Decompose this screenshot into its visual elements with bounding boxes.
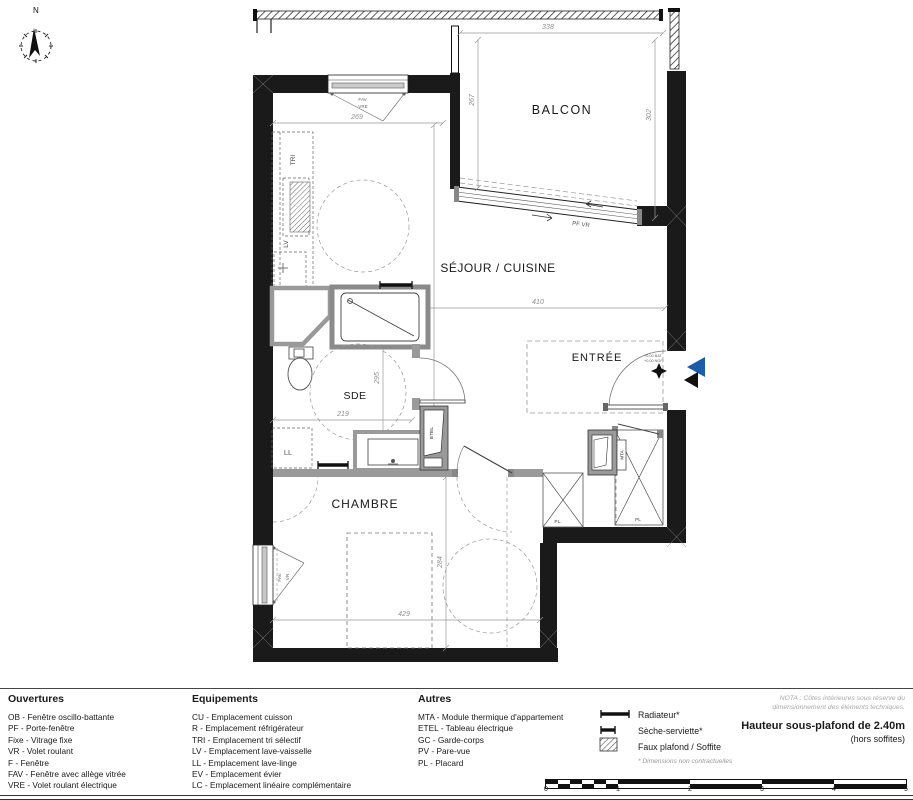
- legend-item: VR - Volet roulant: [8, 746, 126, 757]
- legend-column-ouvertures: Ouvertures OB - Fenêtre oscillo-battante…: [8, 693, 126, 792]
- exterior-walls: [253, 71, 686, 662]
- sde-door-arc: [420, 358, 465, 403]
- dim-balcon-left: 267: [469, 93, 476, 107]
- legend-symbols: Radiateur* Sèche-serviette* Faux plafond…: [598, 707, 732, 765]
- chambre-turning-circle: [443, 539, 537, 633]
- legend-item: ETEL - Tableau électrique: [418, 723, 563, 734]
- toilet: [288, 347, 313, 390]
- floorplan-page: N: [0, 0, 913, 800]
- nota-line-2: dimensionnement des éléments techniques.: [735, 704, 905, 713]
- legend-item: FAV - Fenêtre avec allège vitrée: [8, 769, 126, 780]
- legend-footnote: * Dimensions non contractuelles: [638, 758, 732, 765]
- compass: N: [19, 6, 53, 63]
- window-vre-label: VRE: [358, 104, 367, 109]
- bottom-double-rule: [0, 795, 913, 800]
- chambre-door: [452, 446, 514, 477]
- floor-plan: N: [0, 0, 913, 690]
- scale-tick: 5: [904, 786, 908, 793]
- scale-tick: 2: [688, 786, 692, 793]
- scale-bar: 0 1 2 3 4 5: [545, 776, 907, 794]
- legend-item: OB - Fenêtre oscillo-battante: [8, 712, 126, 723]
- nota-line-1: NOTA : Côtes intérieures sous réserve du: [735, 695, 905, 704]
- chambre-room-label: CHAMBRE: [331, 497, 398, 511]
- legend-item: Fixe - Vitrage fixe: [8, 735, 126, 746]
- ceiling-height-sub: (hors soffites): [735, 734, 905, 744]
- pf-vr-label: PF VR: [572, 221, 591, 229]
- legend-title: Equipements: [192, 693, 351, 705]
- legend-item: R - Emplacement réfrigérateur: [192, 723, 351, 734]
- legend-item: F - Fenêtre: [8, 758, 126, 769]
- partition-walls: [273, 469, 543, 477]
- dim-balcon-right: 302: [646, 109, 653, 121]
- entrance-arrow-black: [684, 372, 698, 388]
- chambre-circulation-arc-left: [273, 477, 318, 522]
- etel-label: ETEL: [429, 427, 435, 439]
- scale-tick: 4: [832, 786, 836, 793]
- level-text-2: +0,00 NGF: [644, 359, 663, 363]
- pl-small-label: PL.: [554, 519, 561, 525]
- window-fav-label: FAV.: [358, 97, 367, 102]
- soffit-icon: [598, 737, 638, 757]
- legend-title: Autres: [418, 693, 563, 705]
- legend-column-autres: Autres MTA - Module thermique d'appartem…: [418, 693, 563, 769]
- pare-vue-screen: [452, 26, 459, 73]
- legend: Ouvertures OB - Fenêtre oscillo-battante…: [0, 688, 913, 797]
- dim-cuisine-width: 269: [350, 114, 363, 121]
- sliding-door-pf-vr: PF VR: [454, 178, 642, 229]
- table-circle: [317, 180, 409, 272]
- dim-balcon-width: 338: [542, 24, 554, 31]
- lv-label: LV: [283, 240, 290, 248]
- legend-column-equipements: Equipements CU - Emplacement cuisson R -…: [192, 693, 351, 792]
- dim-chambre-width: 429: [398, 611, 410, 618]
- chambre-window-fav-label: FAV.: [277, 572, 282, 581]
- sde-room-label: SDE: [343, 390, 366, 402]
- radiator-symbol: [318, 461, 348, 469]
- legend-item: LV - Emplacement lave-vaisselle: [192, 746, 351, 757]
- window-fav-vre: FAV. VRE: [328, 75, 408, 121]
- sde-angled-wall: [272, 288, 330, 344]
- legend-symbol-radiator: Radiateur*: [598, 707, 732, 722]
- legend-item: VRE - Volet roulant électrique: [8, 780, 126, 791]
- legend-item: CU - Emplacement cuisson: [192, 712, 351, 723]
- legend-item: PL - Placard: [418, 758, 563, 769]
- level-marker-star: [651, 363, 667, 379]
- legend-item: TRI - Emplacement tri sélectif: [192, 735, 351, 746]
- legend-item: EV - Emplacement évier: [192, 769, 351, 780]
- compass-north-label: N: [33, 6, 39, 15]
- mta-label: MTA: [620, 450, 625, 459]
- legend-item: PV - Pare-vue: [418, 746, 563, 757]
- ceiling-height-note: Hauteur sous-plafond de 2.40m: [735, 720, 905, 732]
- scale-bar-graphic: [545, 779, 907, 789]
- legend-item: MTA - Module thermique d'appartement: [418, 712, 563, 723]
- legend-symbol-label: Sèche-serviette*: [638, 726, 703, 736]
- balcony-railing: [253, 8, 680, 69]
- tri-label: TRI: [290, 155, 297, 166]
- dim-sejour-width: 410: [532, 299, 544, 306]
- pl-large-label: PL: [635, 517, 641, 523]
- compass-needle: [29, 28, 40, 58]
- dim-sde-depth: 295: [374, 372, 381, 385]
- legend-symbol-label: Radiateur*: [638, 710, 680, 720]
- legend-item: PF - Porte-fenêtre: [8, 723, 126, 734]
- entree-zone: ENTRÉE +0,00 BAT +0,00 NGF: [527, 341, 705, 413]
- legend-item: GC - Garde-corps: [418, 735, 563, 746]
- legend-item: LC - Emplacement linéaire complémentaire: [192, 780, 351, 791]
- closet-pl-small: [543, 473, 583, 527]
- legend-symbol-soffit: Faux plafond / Soffite: [598, 739, 732, 754]
- bed-outline: [347, 533, 432, 648]
- balcon-room-label: BALCON: [532, 103, 592, 117]
- etel-unit: ETEL: [420, 406, 448, 470]
- level-text-1: +0,00 BAT: [644, 354, 662, 358]
- ll-label: LL: [284, 448, 292, 457]
- legend-item: LL - Emplacement lave-linge: [192, 758, 351, 769]
- sejour-room-label: SÉJOUR / CUISINE: [440, 260, 555, 275]
- dim-chambre-depth: 284: [437, 556, 444, 569]
- window-fav-vr: FAV. VR: [253, 545, 304, 605]
- dim-sde-width: 219: [336, 411, 349, 418]
- legend-symbol-label: Faux plafond / Soffite: [638, 742, 721, 752]
- entree-room-label: ENTRÉE: [572, 351, 623, 364]
- scale-tick: 1: [616, 786, 620, 793]
- legend-title: Ouvertures: [8, 693, 126, 705]
- notes-block: NOTA : Côtes intérieures sous réserve du…: [735, 695, 905, 744]
- scale-tick: 3: [760, 786, 764, 793]
- chambre-door-swing-dashed: [457, 477, 512, 532]
- chambre-window-vr-label: VR: [285, 573, 290, 580]
- scale-tick: 0: [544, 786, 548, 793]
